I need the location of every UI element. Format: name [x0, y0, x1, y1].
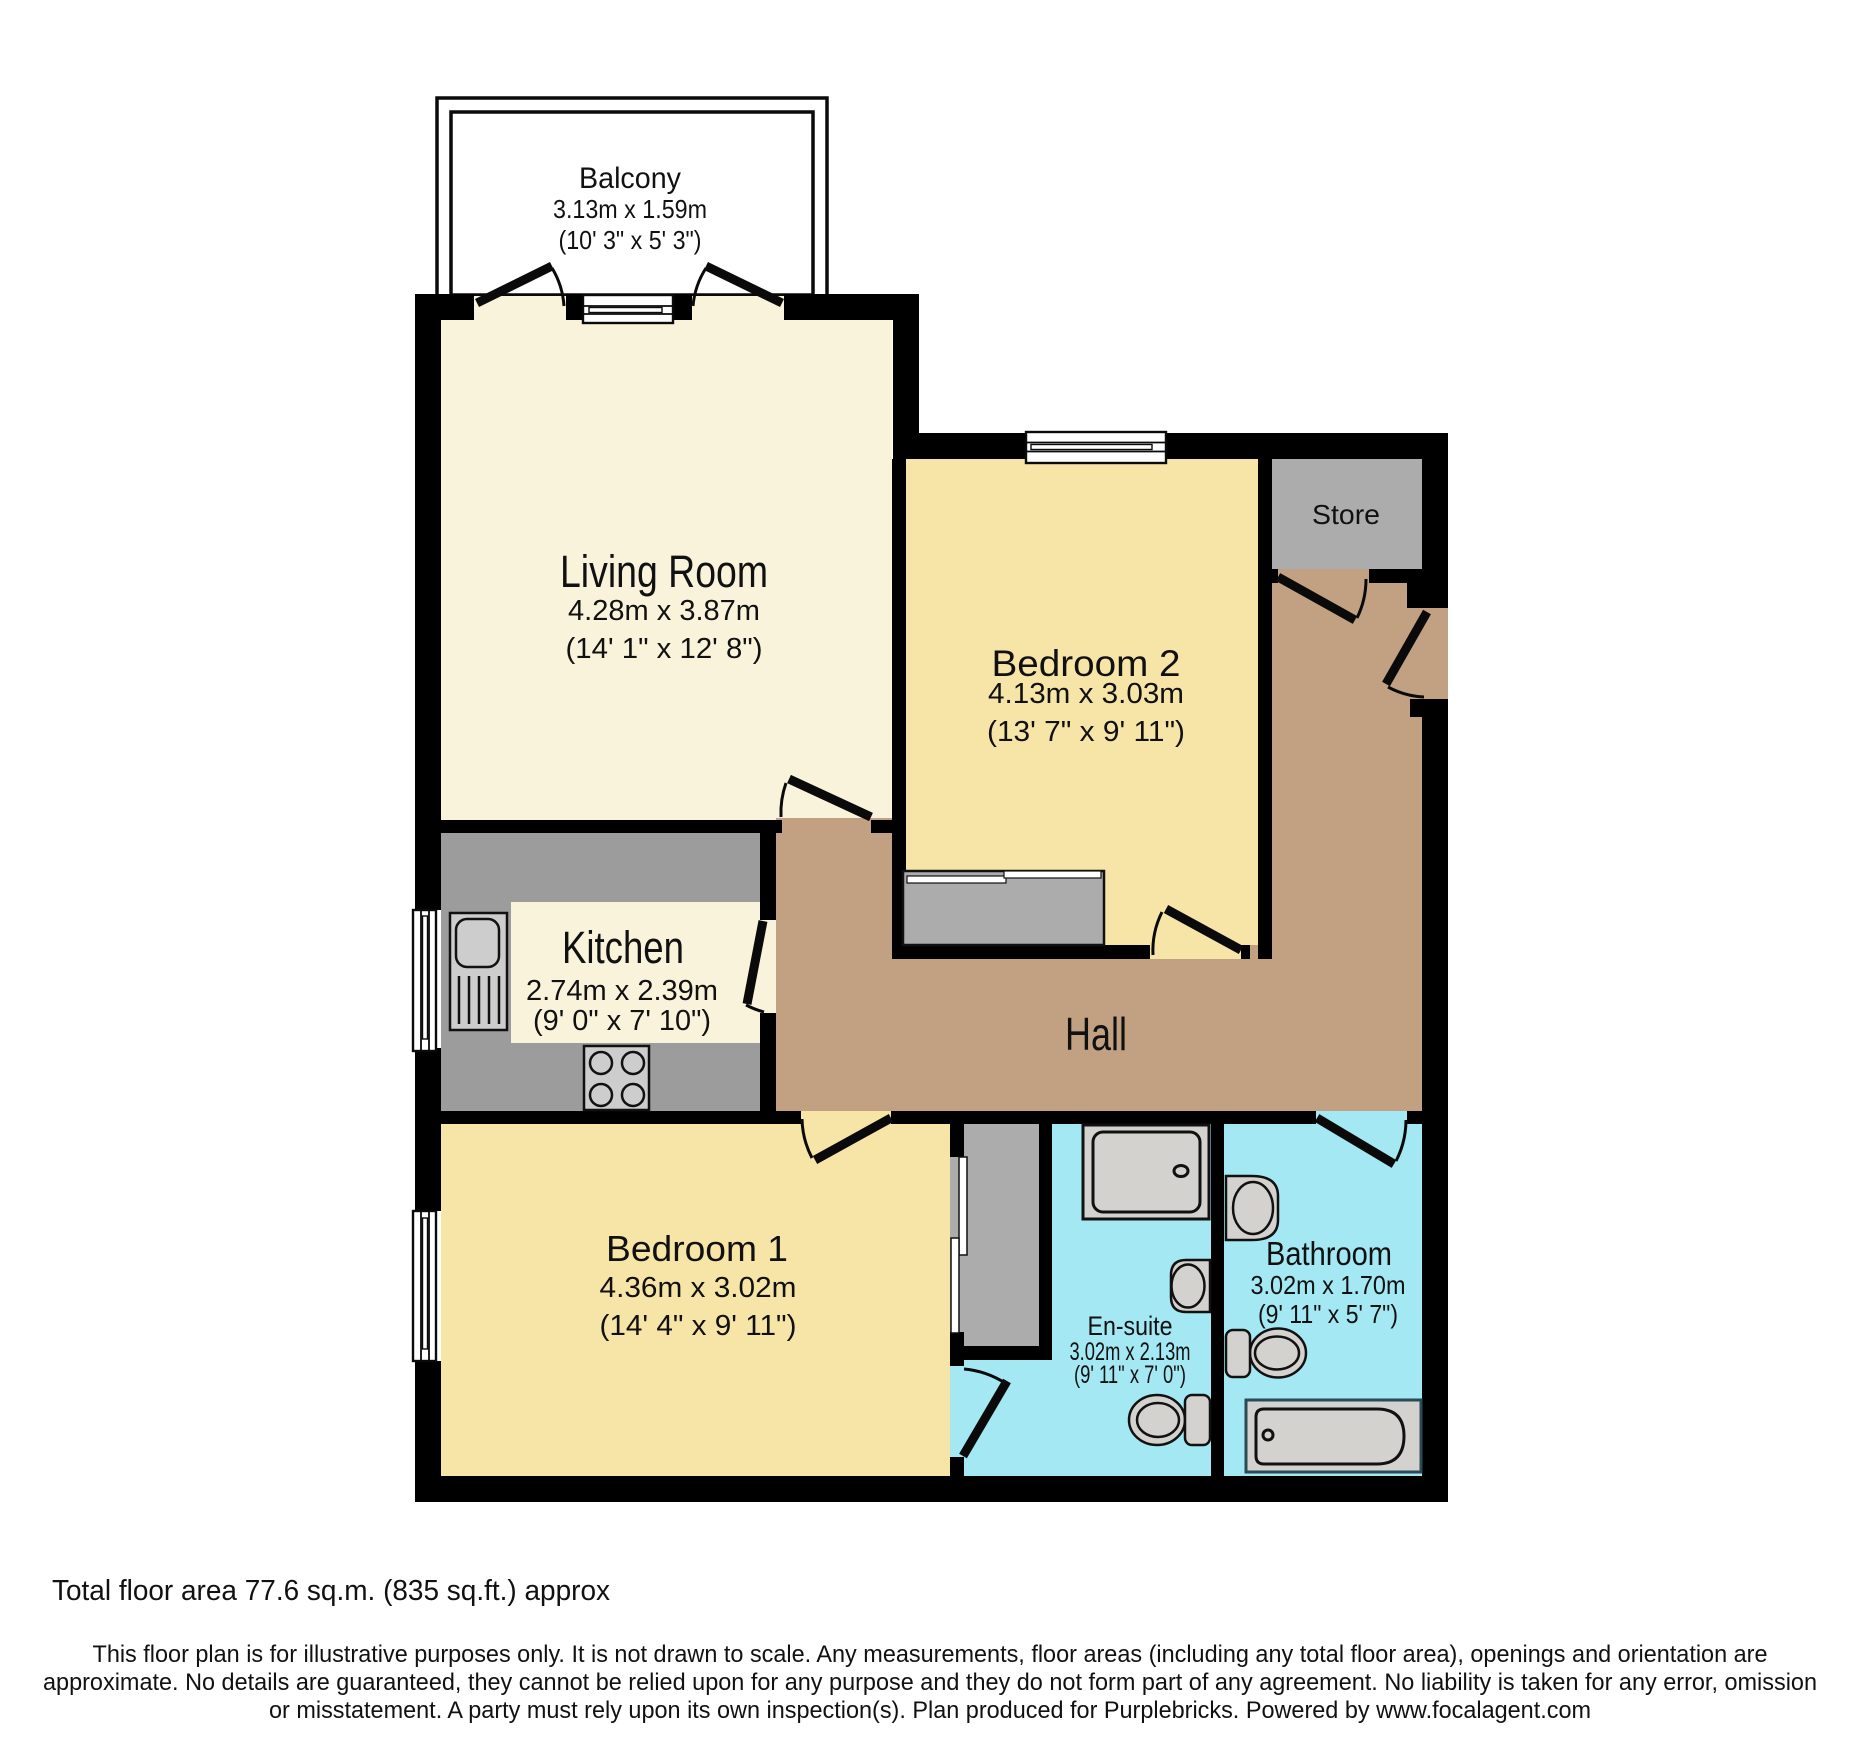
svg-text:3.13m x 1.59m: 3.13m x 1.59m — [553, 194, 707, 224]
svg-text:Store: Store — [1312, 499, 1380, 530]
svg-text:Bathroom: Bathroom — [1266, 1235, 1392, 1272]
svg-text:En-suite: En-suite — [1088, 1311, 1173, 1341]
svg-text:(10' 3" x 5' 3"): (10' 3" x 5' 3") — [559, 225, 702, 255]
svg-text:Kitchen: Kitchen — [562, 922, 684, 973]
svg-text:(9' 0" x 7' 10"): (9' 0" x 7' 10") — [533, 1005, 711, 1037]
svg-text:(9' 11" x 5' 7"): (9' 11" x 5' 7") — [1258, 1299, 1398, 1329]
svg-text:(14' 4" x 9' 11"): (14' 4" x 9' 11") — [600, 1310, 797, 1342]
svg-text:Living Room: Living Room — [560, 546, 768, 597]
svg-text:Total floor area 77.6 sq.m. (8: Total floor area 77.6 sq.m. (835 sq.ft.)… — [52, 1575, 610, 1607]
svg-text:or misstatement. A party must: or misstatement. A party must rely upon … — [269, 1697, 1591, 1724]
svg-text:(9' 11" x 7' 0"): (9' 11" x 7' 0") — [1074, 1361, 1186, 1389]
svg-text:approximate. No details are gu: approximate. No details are guaranteed, … — [43, 1669, 1817, 1696]
svg-text:Balcony: Balcony — [579, 162, 681, 195]
svg-text:Hall: Hall — [1065, 1008, 1127, 1060]
svg-text:(13' 7" x 9' 11"): (13' 7" x 9' 11") — [987, 716, 1185, 748]
svg-text:(14' 1" x 12' 8"): (14' 1" x 12' 8") — [566, 633, 763, 665]
svg-text:4.13m x 3.03m: 4.13m x 3.03m — [988, 678, 1184, 710]
svg-text:3.02m x 1.70m: 3.02m x 1.70m — [1251, 1270, 1406, 1300]
svg-text:4.36m x 3.02m: 4.36m x 3.02m — [600, 1272, 797, 1304]
svg-text:Bedroom 1: Bedroom 1 — [606, 1228, 788, 1269]
svg-text:4.28m x 3.87m: 4.28m x 3.87m — [568, 595, 760, 627]
svg-text:2.74m x 2.39m: 2.74m x 2.39m — [526, 975, 718, 1007]
svg-text:This floor plan is for illustr: This floor plan is for illustrative purp… — [93, 1641, 1768, 1668]
